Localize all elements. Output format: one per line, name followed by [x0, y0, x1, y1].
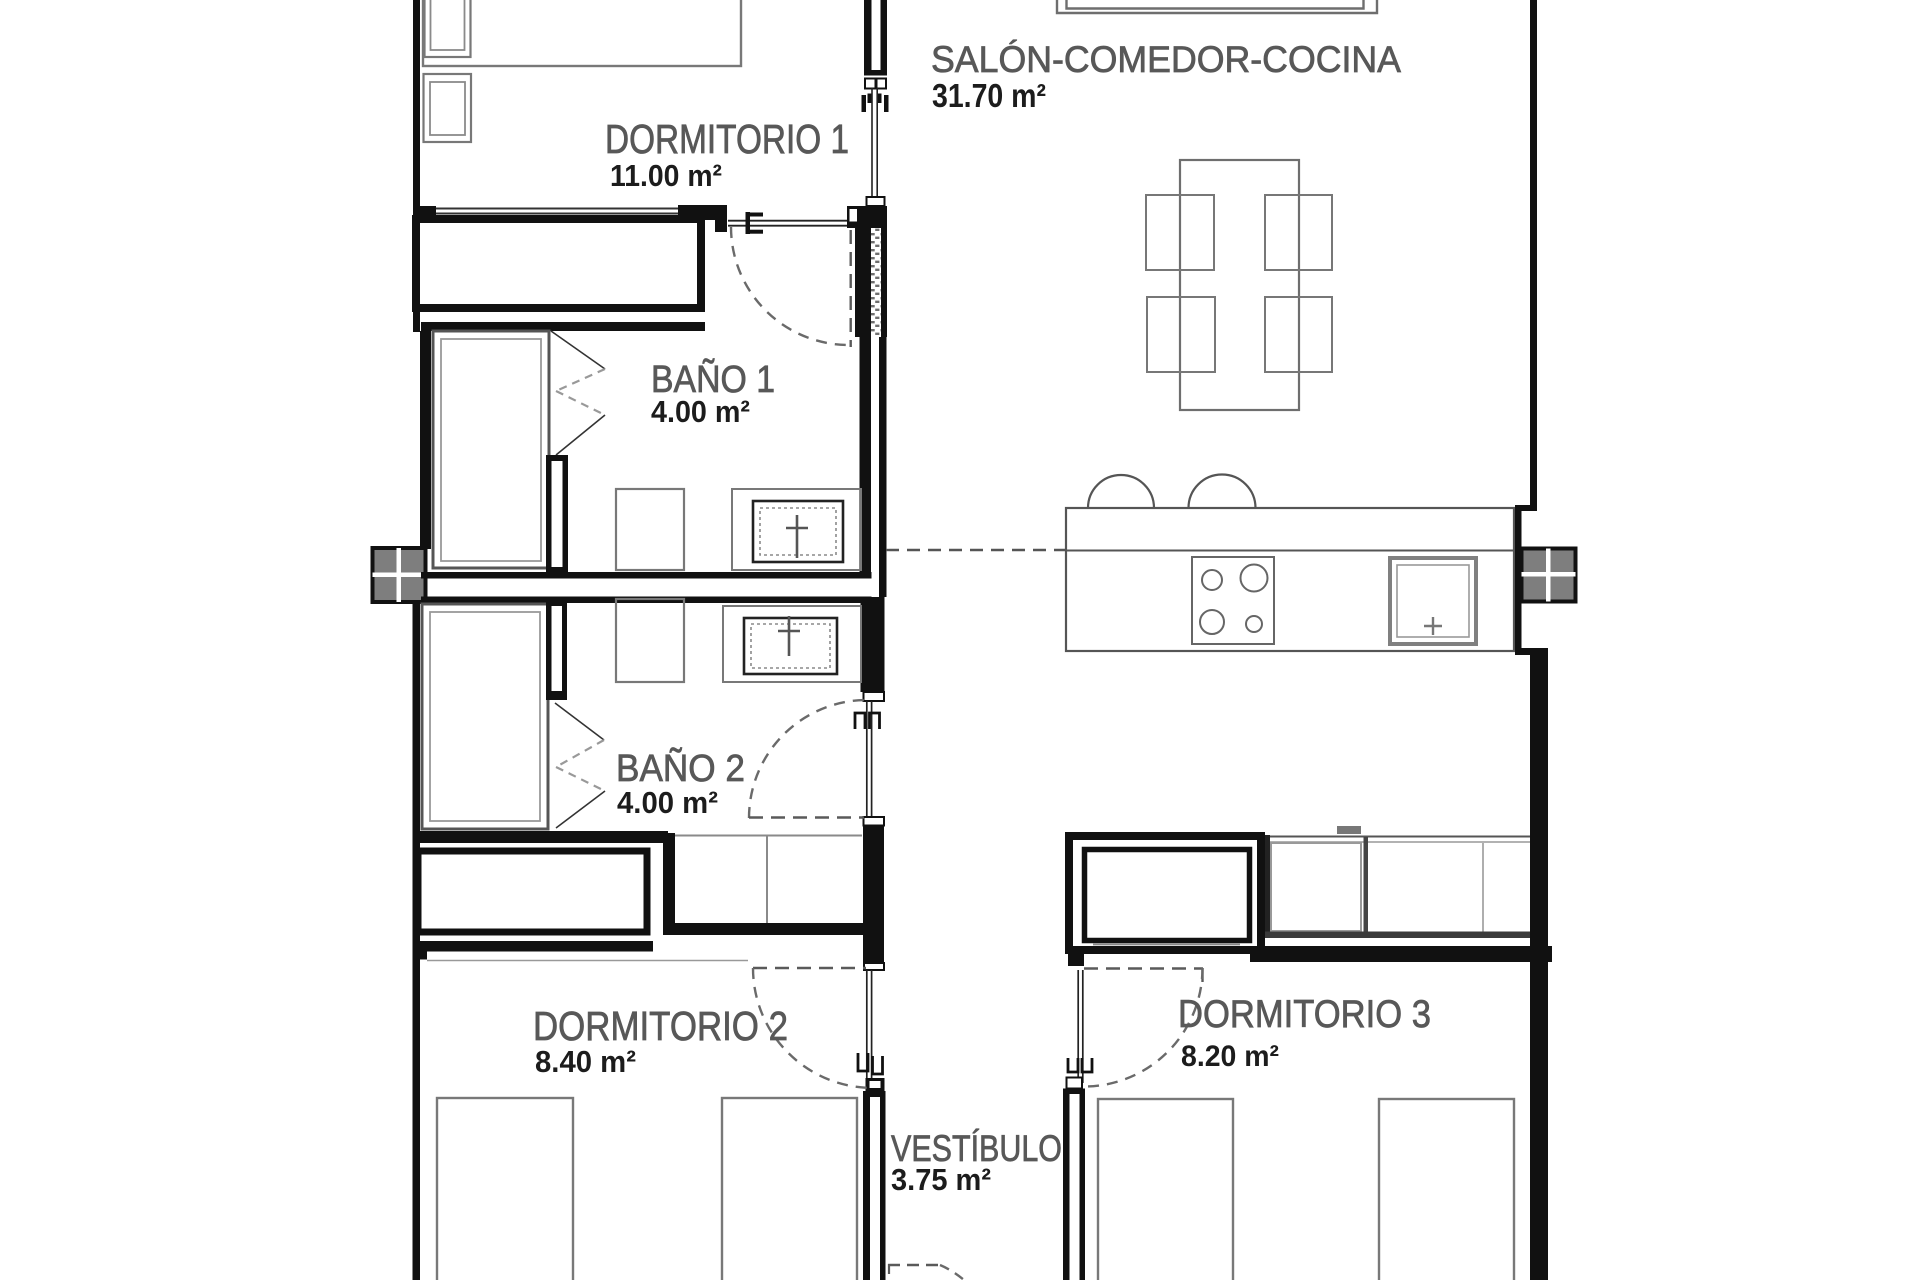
svg-text:4.00 m²: 4.00 m²: [617, 785, 718, 820]
svg-text:4.00 m²: 4.00 m²: [651, 394, 750, 429]
svg-text:8.40 m²: 8.40 m²: [535, 1044, 636, 1079]
svg-text:DORMITORIO 3: DORMITORIO 3: [1178, 993, 1431, 1036]
svg-text:SALÓN-COMEDOR-COCINA: SALÓN-COMEDOR-COCINA: [931, 39, 1401, 80]
svg-text:31.70 m²: 31.70 m²: [932, 77, 1046, 114]
svg-text:BAÑO 2: BAÑO 2: [616, 747, 745, 790]
svg-text:11.00 m²: 11.00 m²: [610, 158, 722, 193]
svg-text:8.20 m²: 8.20 m²: [1181, 1040, 1279, 1073]
svg-text:3.75 m²: 3.75 m²: [891, 1162, 991, 1197]
svg-text:DORMITORIO 1: DORMITORIO 1: [605, 116, 849, 162]
svg-text:DORMITORIO 2: DORMITORIO 2: [533, 1003, 788, 1049]
